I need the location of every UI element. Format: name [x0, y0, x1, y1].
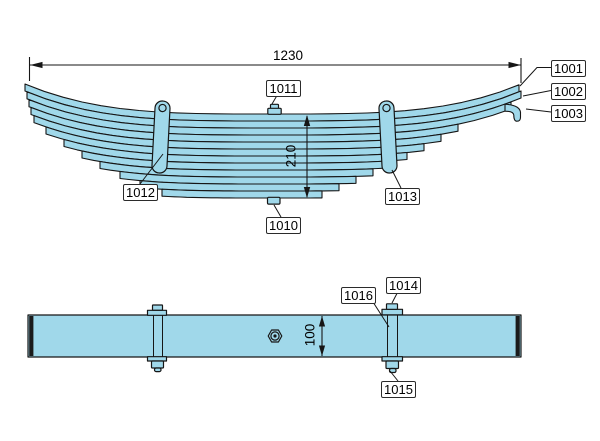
leader-1003 [526, 109, 551, 112]
left-clamp [152, 101, 171, 174]
leaf-spring-diagram: 1230 210 100 1001 1002 1003 1011 1012 10… [0, 0, 600, 441]
leader-1013 [392, 170, 401, 188]
callout-1011: 1011 [266, 80, 301, 97]
callout-1001: 1001 [551, 60, 586, 77]
center-bolt-plan [268, 330, 282, 342]
leader-1002 [523, 91, 551, 97]
left-clamp-hole [159, 104, 167, 112]
center-bolt-collar [268, 108, 281, 114]
top-view-spring [28, 292, 521, 382]
right-clamp-nut [386, 361, 399, 369]
right-clamp-top-flange [382, 309, 403, 315]
spring-leaf-12 [162, 189, 322, 198]
left-clamp-bolt-tip [155, 368, 162, 372]
bar-left-end-cap [29, 316, 33, 356]
dimension-100-label: 100 [303, 324, 318, 347]
right-clamp-hole [383, 104, 391, 112]
callout-1002: 1002 [551, 83, 586, 100]
center-bolt-nut [268, 197, 281, 204]
callout-1014: 1014 [386, 277, 421, 294]
right-clamp-bolt-head [387, 304, 398, 310]
callout-1012: 1012 [123, 184, 158, 201]
leader-1001 [520, 68, 551, 87]
callout-1016: 1016 [341, 287, 376, 304]
left-clamp-top-flange [148, 310, 167, 315]
center-bolt-dot [273, 334, 276, 337]
left-clamp-nut [152, 361, 164, 368]
right-clamp [379, 101, 398, 174]
leader-1010 [274, 205, 281, 217]
bar-right-end-cap [516, 316, 520, 356]
left-clamp-bolt-head [153, 305, 163, 310]
callout-1003: 1003 [551, 105, 586, 122]
left-clamp-bottom-flange [148, 357, 167, 361]
dimension-1230-label: 1230 [273, 48, 303, 63]
dimension-210-label: 210 [284, 145, 299, 168]
callout-1010: 1010 [266, 217, 301, 234]
callout-1013: 1013 [385, 188, 420, 205]
callout-1015: 1015 [381, 381, 416, 398]
leaf-stack [25, 84, 521, 198]
spring-leaf-3-curled-tip [505, 104, 521, 121]
right-clamp-bottom-flange [382, 357, 403, 361]
